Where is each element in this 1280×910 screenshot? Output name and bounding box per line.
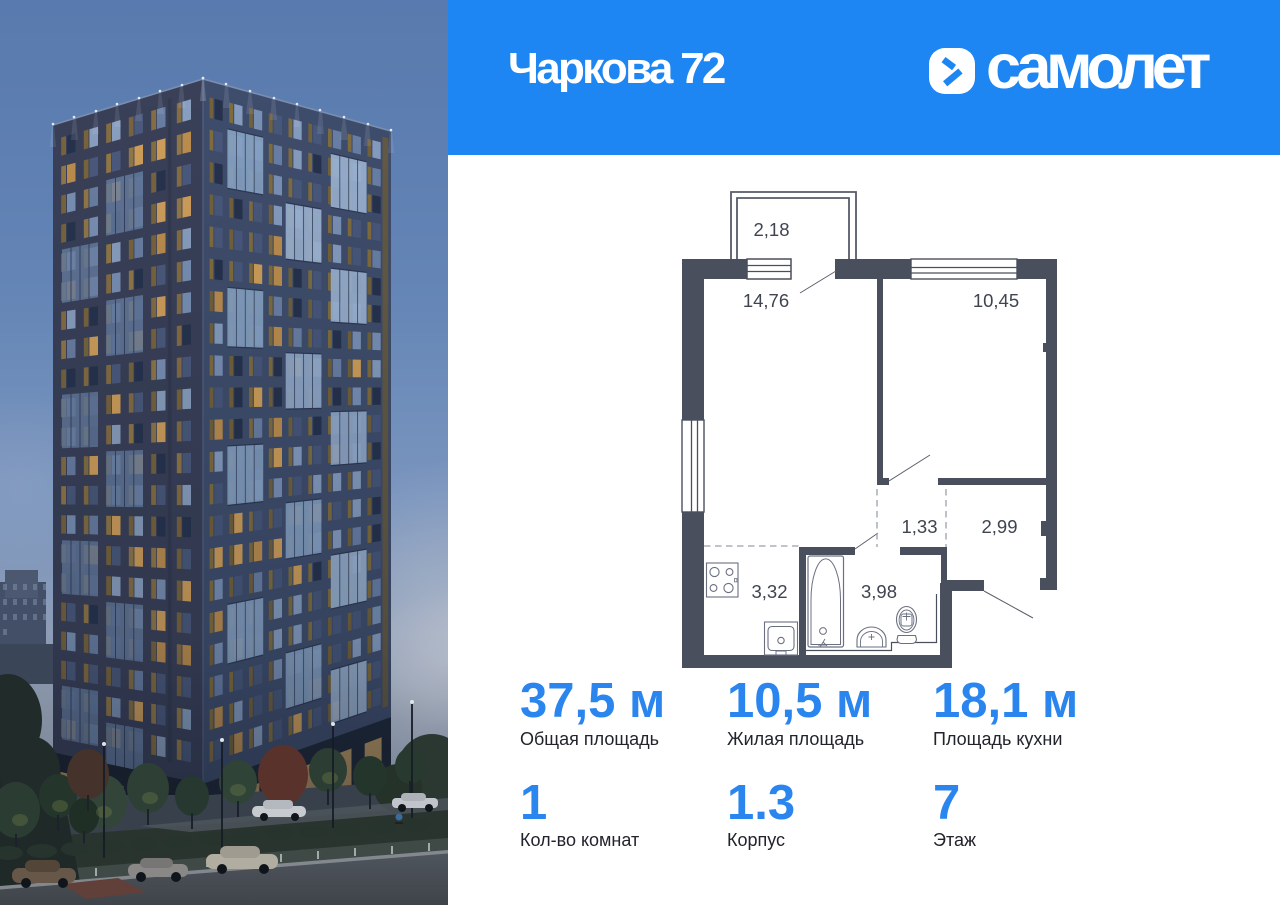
svg-text:1,33: 1,33 — [901, 516, 937, 537]
svg-text:2,18: 2,18 — [753, 219, 789, 240]
svg-text:3,98: 3,98 — [861, 581, 897, 602]
svg-text:3,32: 3,32 — [751, 581, 787, 602]
svg-text:14,76: 14,76 — [743, 290, 789, 311]
svg-text:2,99: 2,99 — [981, 516, 1017, 537]
svg-text:10,45: 10,45 — [973, 290, 1019, 311]
